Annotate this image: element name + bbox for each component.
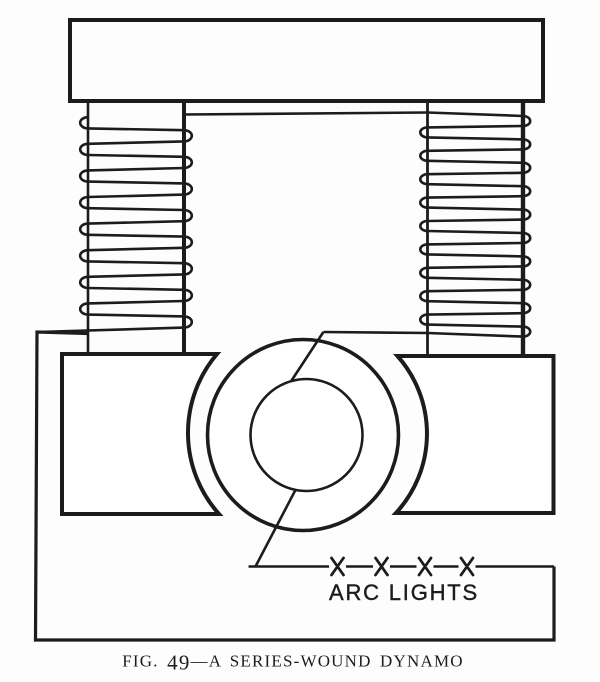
svg-text:ARC LIGHTS: ARC LIGHTS — [329, 580, 479, 605]
svg-text:FIG. 49—A SERIES-WOUND DYNAMO: FIG. 49—A SERIES-WOUND DYNAMO — [122, 651, 464, 675]
